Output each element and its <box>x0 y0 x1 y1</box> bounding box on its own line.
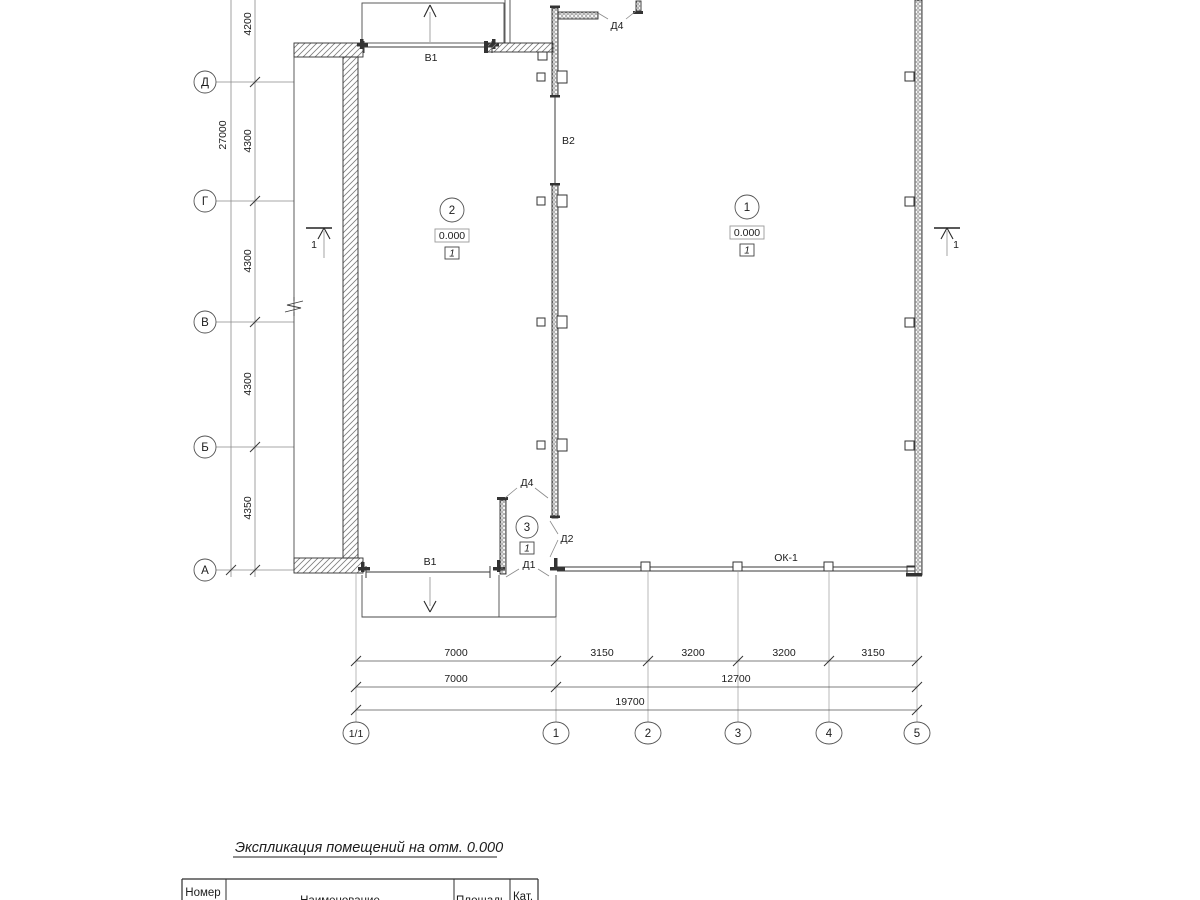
table-header-name: Наименование <box>300 895 380 900</box>
label-d4-bottom: Д4 <box>521 477 534 489</box>
left-exterior-wall <box>285 43 363 573</box>
table-header-number: Номер <box>185 887 220 899</box>
grid-label-4: 4 <box>826 728 833 740</box>
right-exterior-wall <box>905 0 922 577</box>
dim-3150-b: 3150 <box>861 647 885 659</box>
dim-4300-2: 4300 <box>242 249 254 273</box>
axis-label-a: А <box>201 565 209 577</box>
room3-category: 1 <box>524 544 530 555</box>
room1-category: 1 <box>744 246 750 257</box>
dim-4200: 4200 <box>242 12 254 36</box>
label-v1-bottom: В1 <box>424 556 437 568</box>
dim-12700: 12700 <box>721 673 750 685</box>
table-title: Экспликация помещений на отм. 0.000 <box>235 840 503 856</box>
d4-bottom-leader <box>505 488 548 498</box>
axis-label-d: Д <box>201 77 209 89</box>
room1-tag: 1 0.000 1 <box>730 195 764 257</box>
room2-elevation: 0.000 <box>439 230 465 242</box>
grid-label-5: 5 <box>914 728 920 740</box>
grid-label-1: 1 <box>553 728 559 740</box>
room2-number: 2 <box>449 205 455 217</box>
dim-4300-3: 4300 <box>242 372 254 396</box>
room3-number: 3 <box>524 522 530 534</box>
floor-plan-drawing: Д Г В Б А 4200 4300 4300 4300 4350 27000… <box>0 0 1200 900</box>
dim-3200-b: 3200 <box>772 647 796 659</box>
floor-plan-sheet: Д Г В Б А 4200 4300 4300 4300 4350 27000… <box>0 0 1200 900</box>
dim-4350: 4350 <box>242 496 254 520</box>
label-v2: В2 <box>562 135 575 147</box>
room2-tag: 2 0.000 1 <box>435 198 469 260</box>
label-d2: Д2 <box>561 533 574 545</box>
dim-19700: 19700 <box>615 696 644 708</box>
opening-v2: В2 <box>555 97 575 185</box>
label-d1: Д1 <box>523 559 536 571</box>
dim-3200-a: 3200 <box>681 647 705 659</box>
label-ok1: ОК-1 <box>774 552 798 564</box>
section-right-number: 1 <box>953 239 959 251</box>
dim-27000: 27000 <box>217 120 229 149</box>
bottom-grid-bubbles: 1/1 1 2 3 4 5 <box>343 722 930 744</box>
table-header-category: Кат. <box>513 891 533 900</box>
section-mark-left: 1 <box>306 228 332 258</box>
table-header-area: Площадь <box>456 895 506 900</box>
dim-3150-a: 3150 <box>590 647 614 659</box>
axis-label-b: Б <box>201 442 209 454</box>
dim-7000-b: 7000 <box>444 673 468 685</box>
vestibule-room3: Д4 Д2 Д1 3 1 <box>497 477 574 577</box>
section-mark-right: 1 <box>934 228 960 256</box>
grid-label-2: 2 <box>645 728 651 740</box>
dim-4300-1: 4300 <box>242 129 254 153</box>
bottom-dim-row3: 19700 <box>351 696 922 715</box>
gate-v1-top: В1 <box>357 3 504 64</box>
axis-label-v: В <box>201 317 209 329</box>
left-dimension-lines <box>231 0 255 577</box>
grid-label-3: 3 <box>735 728 741 740</box>
room1-number: 1 <box>744 202 750 214</box>
section-left-number: 1 <box>311 239 317 251</box>
label-d4-top: Д4 <box>611 20 624 32</box>
bottom-dim-row1: 7000 3150 3200 3200 3150 <box>351 647 922 666</box>
left-axis-bubbles: Д Г В Б А <box>194 71 216 581</box>
label-v1-top: В1 <box>425 52 438 64</box>
explication-table: Экспликация помещений на отм. 0.000 Номе… <box>182 840 538 900</box>
d4-top-leader <box>598 11 636 19</box>
room2-category: 1 <box>449 249 455 260</box>
d2-leader <box>550 521 558 557</box>
bottom-dim-row2: 7000 12700 <box>351 673 922 692</box>
grid-label-1-1: 1/1 <box>349 728 364 740</box>
axis-label-g: Г <box>202 196 209 208</box>
dim-7000-a: 7000 <box>444 647 468 659</box>
break-line-symbol <box>285 297 303 316</box>
left-dim-labels: 4200 4300 4300 4300 4350 27000 <box>217 12 254 520</box>
room1-elevation: 0.000 <box>734 227 760 239</box>
window-ok1: ОК-1 <box>557 552 915 571</box>
